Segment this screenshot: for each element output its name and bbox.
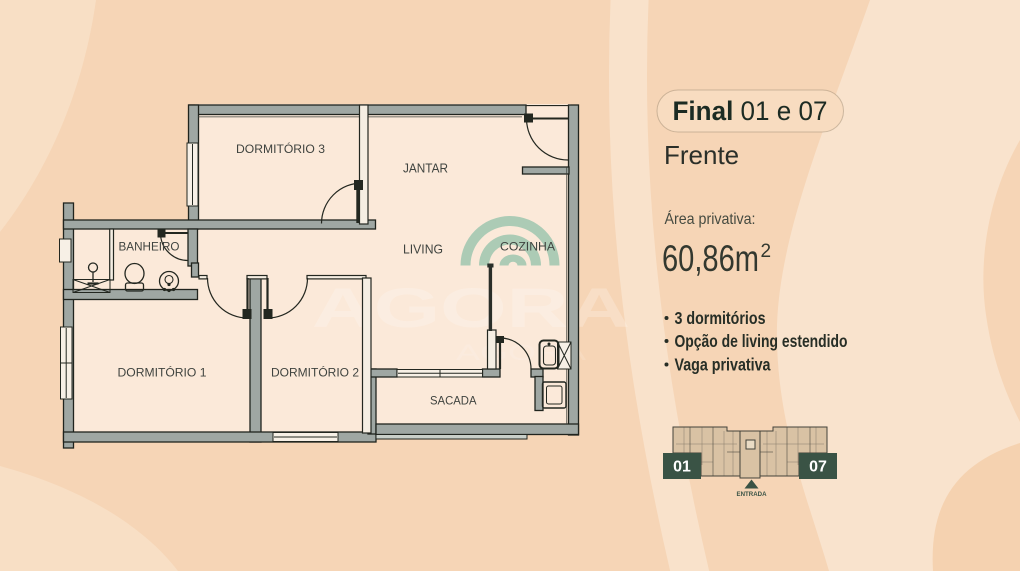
svg-text:3 dormitórios: 3 dormitórios bbox=[675, 308, 766, 328]
svg-text:Frente: Frente bbox=[664, 140, 739, 170]
svg-text:COZINHA: COZINHA bbox=[500, 242, 555, 254]
svg-text:ENTRADA: ENTRADA bbox=[737, 491, 767, 498]
svg-text:Opção de living estendido: Opção de living estendido bbox=[675, 331, 848, 351]
svg-text:07: 07 bbox=[809, 459, 827, 476]
svg-text:DORMITÓRIO 3: DORMITÓRIO 3 bbox=[236, 143, 325, 156]
svg-text:2: 2 bbox=[761, 241, 772, 262]
svg-text:DORMITÓRIO 2: DORMITÓRIO 2 bbox=[271, 367, 359, 380]
svg-text:01: 01 bbox=[673, 459, 691, 476]
svg-text:SACADA: SACADA bbox=[430, 396, 477, 408]
svg-text:BANHEIRO: BANHEIRO bbox=[119, 242, 180, 254]
svg-text:JANTAR: JANTAR bbox=[403, 162, 448, 176]
svg-text:Final 01 e 07: Final 01 e 07 bbox=[673, 96, 828, 126]
svg-text:Área privativa:: Área privativa: bbox=[665, 209, 756, 228]
svg-text:AGORA: AGORA bbox=[312, 276, 630, 339]
svg-text:DORMITÓRIO 1: DORMITÓRIO 1 bbox=[118, 367, 207, 380]
svg-text:LIVING: LIVING bbox=[403, 243, 443, 257]
svg-text:60,86m: 60,86m bbox=[662, 238, 759, 279]
svg-text:Vaga privativa: Vaga privativa bbox=[675, 355, 771, 375]
